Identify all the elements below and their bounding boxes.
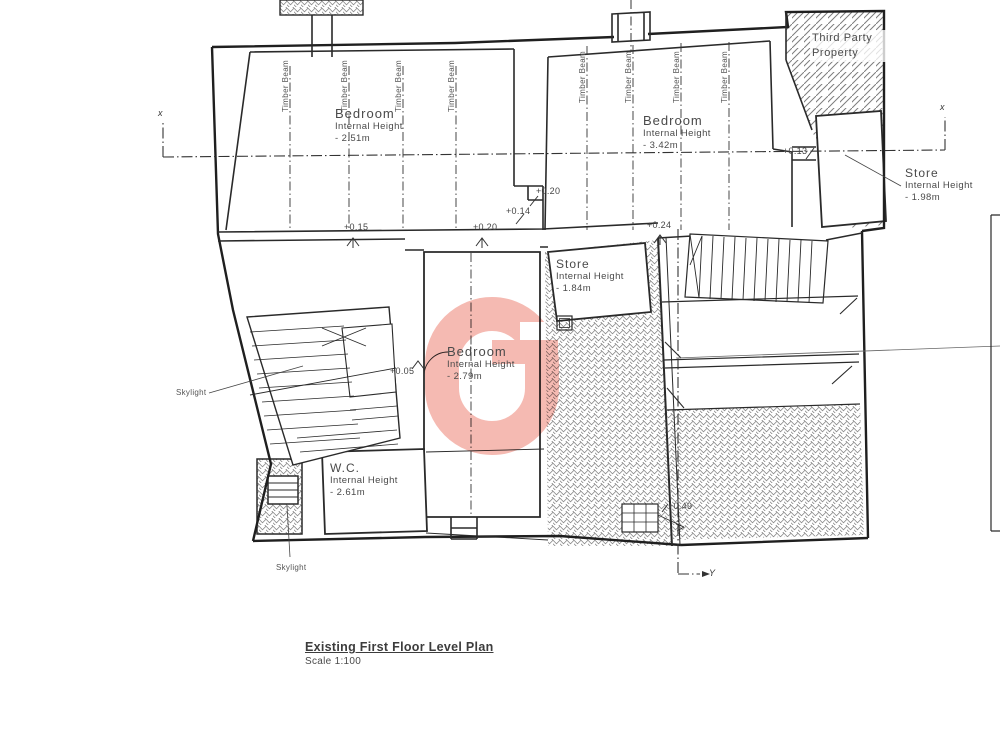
- room-height: - 1.84m: [556, 283, 624, 295]
- timber-beam-label: Timber Beam: [624, 51, 633, 103]
- third-party-property-label: Third Party Property: [810, 30, 888, 62]
- timber-beam-label: Timber Beam: [340, 60, 349, 112]
- skylight-label-shaft: Skylight: [276, 563, 306, 572]
- level-marker: +0.49: [668, 501, 692, 511]
- floor-plan-page: Bedroom Internal Height - 2.51m Bedroom …: [0, 0, 1000, 750]
- skylight-label-stair: Skylight: [176, 388, 206, 397]
- drawing-scale: Scale 1:100: [305, 656, 494, 667]
- timber-beam-label: Timber Beam: [578, 51, 587, 103]
- drawing-title: Existing First Floor Level Plan: [305, 640, 494, 654]
- room-height: - 2.61m: [330, 487, 398, 499]
- room-height: - 2.79m: [447, 371, 515, 383]
- room-height: - 2.51m: [335, 133, 403, 145]
- room-sub: Internal Height: [905, 180, 973, 192]
- timber-beam-label: Timber Beam: [447, 60, 456, 112]
- level-marker: +0.24: [647, 220, 671, 230]
- level-marker: +0.13: [783, 146, 807, 156]
- timber-beam-label: Timber Beam: [394, 60, 403, 112]
- room-name: W.C.: [330, 461, 398, 475]
- room-height: - 1.98m: [905, 192, 973, 204]
- section-marker-y: Y: [709, 568, 715, 578]
- section-marker-x-left: x: [158, 108, 163, 118]
- room-label-store-middle: Store Internal Height - 1.84m: [556, 257, 624, 296]
- room-name: Bedroom: [447, 344, 515, 359]
- level-marker: +0.20: [473, 222, 497, 232]
- room-height: - 3.42m: [643, 140, 711, 152]
- room-sub: Internal Height: [556, 271, 624, 283]
- level-marker: +0.05: [390, 366, 414, 376]
- room-label-wc: W.C. Internal Height - 2.61m: [330, 461, 398, 500]
- room-label-bedroom-right: Bedroom Internal Height - 3.42m: [643, 113, 711, 153]
- timber-beam-label: Timber Beam: [720, 51, 729, 103]
- room-name: Store: [556, 257, 624, 271]
- section-marker-x-right: x: [940, 102, 945, 112]
- room-label-bedroom-center: Bedroom Internal Height - 2.79m: [447, 344, 515, 384]
- room-sub: Internal Height: [643, 128, 711, 140]
- room-sub: Internal Height: [330, 475, 398, 487]
- timber-beam-label: Timber Beam: [672, 51, 681, 103]
- room-sub: Internal Height: [447, 359, 515, 371]
- left-staircase: [247, 307, 400, 465]
- room-name: Store: [905, 166, 973, 180]
- room-sub: Internal Height: [335, 121, 403, 133]
- room-name: Bedroom: [643, 113, 711, 128]
- level-marker: +0.20: [536, 186, 560, 196]
- level-marker: +0.15: [344, 222, 368, 232]
- timber-beam-label: Timber Beam: [281, 60, 290, 112]
- level-marker: +0.14: [506, 206, 530, 216]
- title-block: Existing First Floor Level Plan Scale 1:…: [305, 640, 494, 667]
- room-label-store-right: Store Internal Height - 1.98m: [905, 166, 973, 205]
